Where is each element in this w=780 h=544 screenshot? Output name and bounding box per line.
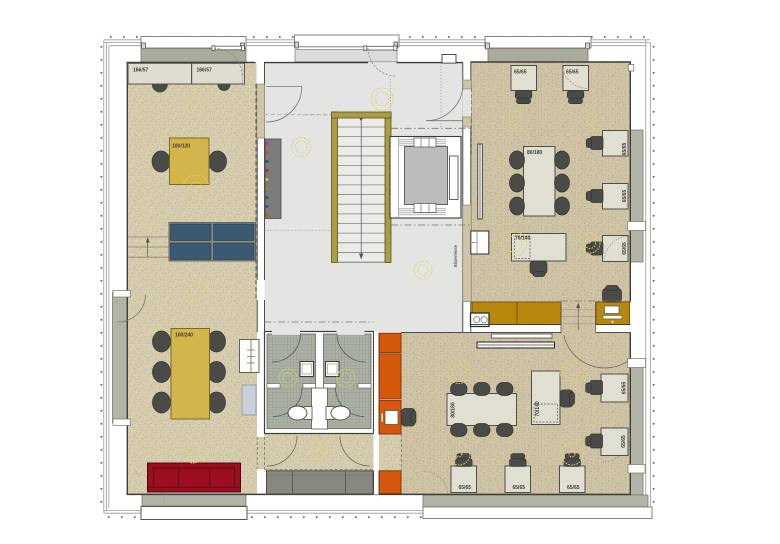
- svg-text:65/65: 65/65: [622, 143, 628, 156]
- svg-text:65/65: 65/65: [459, 485, 472, 491]
- svg-text:65/65: 65/65: [513, 485, 526, 491]
- svg-text:100/240: 100/240: [175, 333, 193, 339]
- svg-text:65/65: 65/65: [514, 70, 527, 76]
- svg-text:70/140: 70/140: [535, 401, 541, 417]
- svg-text:65/65: 65/65: [622, 242, 628, 255]
- svg-text:Bilderleiste: Bilderleiste: [453, 244, 458, 267]
- svg-text:65/65: 65/65: [566, 70, 579, 76]
- svg-text:80/180: 80/180: [451, 402, 457, 418]
- svg-text:166/57: 166/57: [133, 68, 149, 74]
- svg-text:65/65: 65/65: [622, 190, 628, 203]
- svg-text:65/65: 65/65: [567, 485, 580, 491]
- svg-text:65/65: 65/65: [622, 382, 628, 395]
- svg-text:166/57: 166/57: [197, 68, 213, 74]
- svg-text:80/180: 80/180: [527, 150, 543, 156]
- svg-text:100/120: 100/120: [172, 144, 190, 150]
- svg-text:70/140: 70/140: [515, 236, 531, 242]
- svg-text:65/65: 65/65: [621, 435, 627, 448]
